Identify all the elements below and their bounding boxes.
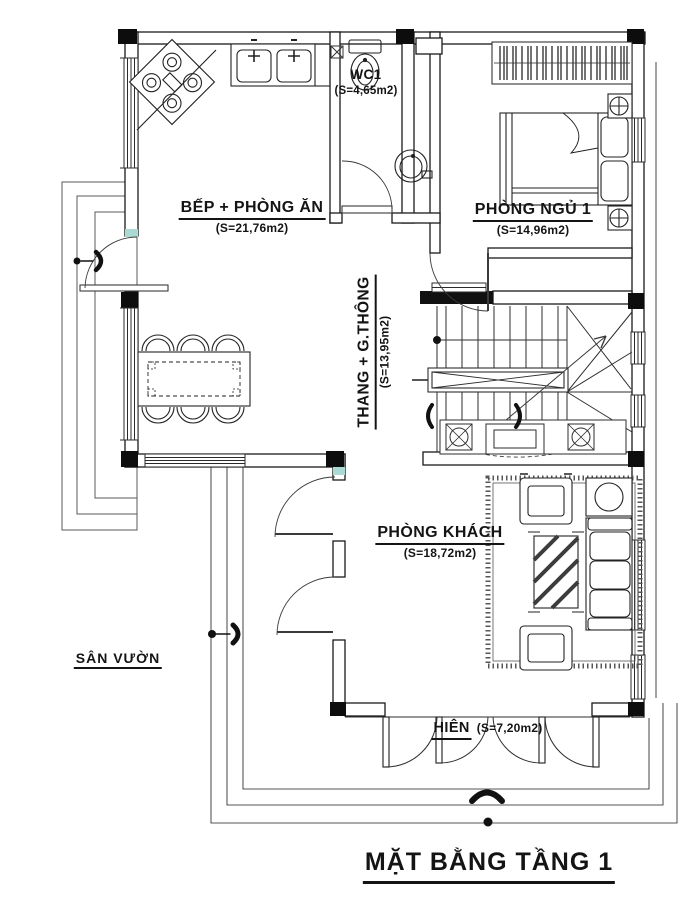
room-label-porch: HIÊN (S=7,20m2) [432,720,543,740]
tv-cabinet [440,420,626,454]
room-name: BẾP + PHÒNG ĂN [179,199,326,220]
room-area: (S=21,76m2) [179,222,326,236]
side-entrance-arrow [74,252,102,270]
armchair-top [520,474,572,524]
room-name: HIÊN [432,720,472,740]
garden-entrance-arrow [208,625,238,643]
room-label-bedroom1: PHÒNG NGỦ 1 (S=14,96m2) [473,201,593,238]
room-area: (S=4,65m2) [334,85,397,98]
room-name: THANG + G.THÔNG [356,274,377,429]
room-area: (S=18,72m2) [375,547,504,561]
entrance-arrow [472,793,502,827]
area-label-garden: SÂN VƯỜN [74,650,162,669]
area-name: SÂN VƯỜN [74,650,162,669]
stair-handrail [412,368,568,392]
room-label-stairs: THANG + G.THÔNG (S=13,95m2) [356,274,393,429]
sofa [586,518,632,630]
stair-railing [432,283,486,292]
floor-plan-drawing [0,0,700,918]
stove [130,40,216,130]
room-name: PHÒNG NGỦ 1 [473,201,593,222]
room-label-kitchen-dining: BẾP + PHÒNG ĂN (S=21,76m2) [179,199,326,236]
floor-plan-page: BẾP + PHÒNG ĂN (S=21,76m2) WC1 (S=4,65m2… [0,0,700,918]
room-area: (S=14,96m2) [473,224,593,238]
room-label-living: PHÒNG KHÁCH (S=18,72m2) [375,524,504,561]
title-text: MẶT BẰNG TẦNG 1 [363,848,615,884]
armchair-bottom [520,626,572,670]
kitchen-sink [231,40,330,86]
room-name: WC1 [348,67,383,84]
room-name: PHÒNG KHÁCH [375,524,504,545]
round-side-table [586,478,632,516]
coffee-table [528,532,584,612]
room-area: (S=13,95m2) [379,274,393,429]
room-label-wc1: WC1 (S=4,65m2) [334,66,397,99]
wardrobe [492,42,632,84]
double-bed [500,113,632,205]
dining-table [138,352,250,406]
room-area: (S=7,20m2) [477,722,543,736]
page-title: MẶT BẰNG TẦNG 1 [363,848,615,884]
